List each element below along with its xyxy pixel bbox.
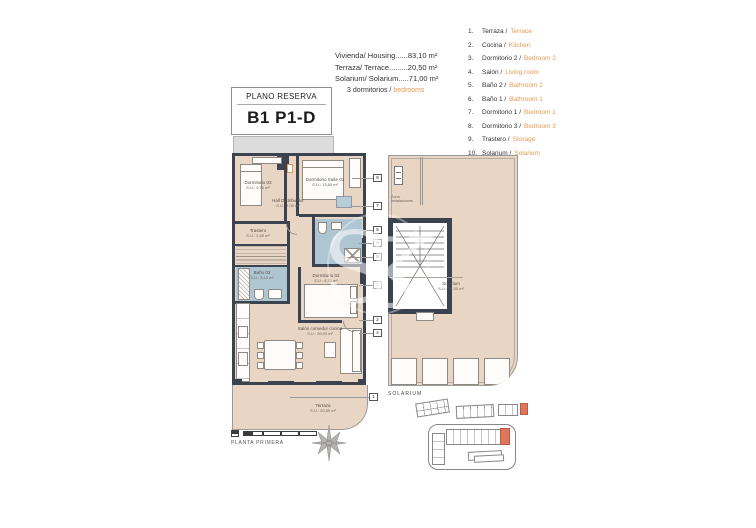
door-arc: [343, 321, 354, 332]
shower-bath1: [344, 248, 361, 263]
legend-item: 5.Baño 2 / Bathroom 2: [468, 82, 556, 96]
pergola: [390, 358, 517, 385]
solarium-caption: SOLARIUM: [388, 391, 422, 397]
chair: [257, 352, 264, 359]
callout-storage: 9: [373, 253, 382, 261]
legend-item: 9.Trastero / Storage: [468, 136, 556, 150]
scale-bar: [231, 429, 321, 438]
plan-sheet: PLANO RESERVA B1 P1-D Vivienda/ Housing.…: [0, 0, 756, 528]
pillow-dorm3: [240, 164, 262, 172]
pillow-suite: [302, 160, 344, 168]
pool: [468, 450, 502, 461]
bathroom1-floor: [315, 219, 362, 264]
bed-dorm2: [304, 284, 358, 318]
callout-dorm1: 7: [373, 202, 382, 210]
unit-code: B1 P1-D: [232, 108, 331, 128]
brand-watermark: S K: [310, 198, 446, 334]
staircase: [236, 246, 286, 265]
area-summary: Vivienda/ Housing......83,10 m² Terraza/…: [335, 50, 438, 85]
shower-bath2: [238, 268, 250, 300]
kitchen-counter: [236, 303, 250, 382]
room-label-suite: Dormitorio Suite 01S.U.: 13,60 m²: [303, 177, 347, 187]
callout-terrace: 1: [369, 393, 378, 401]
legend-item: 4.Salón / Living room: [468, 69, 556, 83]
bed-suite: [302, 160, 344, 200]
toilet-bath1: [318, 222, 327, 234]
elevation-block: [415, 399, 450, 418]
sink-bath1: [331, 222, 342, 230]
terrace: [232, 385, 368, 430]
callout-livingroom: 4: [373, 329, 382, 337]
sofa: [340, 328, 362, 374]
chair: [296, 362, 303, 369]
chair: [296, 352, 303, 359]
legend-item: 3.Dormitorio 2 / Bedroom 2: [468, 55, 556, 69]
room-label-terraza: TerrazaS.U.: 20,50 m²: [301, 403, 345, 413]
room-label-dorm2: Dormitorio 02S.U.: 8,75 m²: [306, 273, 346, 283]
stair-enclosure: [388, 218, 452, 314]
wall-stub: [420, 157, 423, 205]
zone-note: Zona instalaciones: [391, 195, 418, 203]
room-label-trastero: TrasteroS.U.: 2,65 m²: [238, 228, 278, 238]
plan-reserve-box: PLANO RESERVA B1 P1-D: [231, 87, 332, 135]
svg-text:S: S: [322, 212, 389, 326]
pillow-dorm2-b: [350, 301, 357, 314]
wardrobe-suite: [349, 158, 361, 188]
chair: [296, 342, 303, 349]
chair: [257, 362, 264, 369]
solarium-leader: [389, 277, 463, 278]
plot-outline: [428, 424, 516, 470]
chair: [257, 342, 264, 349]
legend-item: 6.Baño 1 / Bathroom 1: [468, 96, 556, 110]
sink-bath2: [268, 289, 282, 299]
summary-terrace: Terraza/ Terrace.........20,50 m²: [335, 62, 438, 74]
room-label-dorm3: Dormitorio 03S.U.: 9,70 m²: [238, 180, 278, 190]
callout-bath2: 5: [373, 226, 382, 234]
plot-unit-column: [432, 433, 445, 465]
callout-bedroom2: 3: [373, 281, 382, 289]
summary-housing: Vivienda/ Housing......83,10 m²: [335, 50, 438, 62]
plot-unit-row: [446, 429, 501, 445]
summary-solarium: Solarium/ Solarium.....71,00 m²: [335, 73, 438, 85]
kitchen-hob: [238, 352, 248, 366]
vent-box: [394, 166, 403, 185]
legend-item: 10.Solarium / Solarium: [468, 150, 556, 164]
sofa-cushion: [352, 330, 361, 372]
bed-dorm3: [240, 164, 262, 206]
roof-strip: [233, 136, 334, 155]
room-label-hall: Hall DistribuidorS.U.: 7,00 m²: [272, 198, 304, 208]
svg-text:K: K: [362, 218, 437, 332]
legend-item: 2.Cocina / Kitchen: [468, 42, 556, 56]
elevation-block: [498, 404, 518, 416]
coffee-table: [324, 342, 336, 358]
bench-suite: [336, 196, 352, 208]
toilet-bath2: [254, 289, 264, 300]
plan-reserve-label: PLANO RESERVA: [237, 88, 326, 105]
legend-item: 7.Dormitorio 1 / Bedroom 1: [468, 109, 556, 123]
pool-inner: [474, 454, 504, 463]
door-arc: [286, 224, 297, 235]
solarium-inner-line: [391, 158, 515, 383]
callout-dorm3: 8: [373, 174, 382, 182]
dining-table: [264, 340, 296, 370]
callout-bath1: 6: [373, 239, 382, 247]
legend-item: 1.Terraza / Terrace: [468, 28, 556, 42]
closet-dorm3: [252, 157, 282, 164]
bathroom2-floor: [236, 267, 287, 301]
room-label-salon: Salón comedor cocinaS.U.: 26,00 m²: [296, 326, 344, 336]
bedrooms-line: 3 dormitorios / bedrooms: [347, 87, 424, 94]
legend-item: 8.Dormitorio 3 / Bedroom 3: [468, 123, 556, 137]
room-label-solarium: SolariumS.U.: 71,00 m²: [428, 281, 474, 291]
callout-kitchen: 2: [373, 316, 382, 324]
floor-label: PLANTA PRIMERA: [231, 440, 284, 446]
electrical-panel-icon: [287, 164, 293, 173]
kitchen-sink: [238, 326, 248, 338]
stair-door: [416, 312, 434, 321]
elevation-highlight-unit: [520, 403, 528, 415]
solarium-outline: [388, 155, 518, 386]
apartment-outline: [232, 153, 366, 385]
plot-highlight-unit: [500, 428, 510, 445]
elevation-block: [456, 404, 495, 419]
room-label-bano2: Baño 02S.U.: 3,10 m²: [244, 270, 280, 280]
pillow-dorm2-a: [350, 286, 357, 299]
legend: 1.Terraza / Terrace 2.Cocina / Kitchen 3…: [468, 28, 556, 163]
compass-rose-icon: [312, 425, 346, 461]
